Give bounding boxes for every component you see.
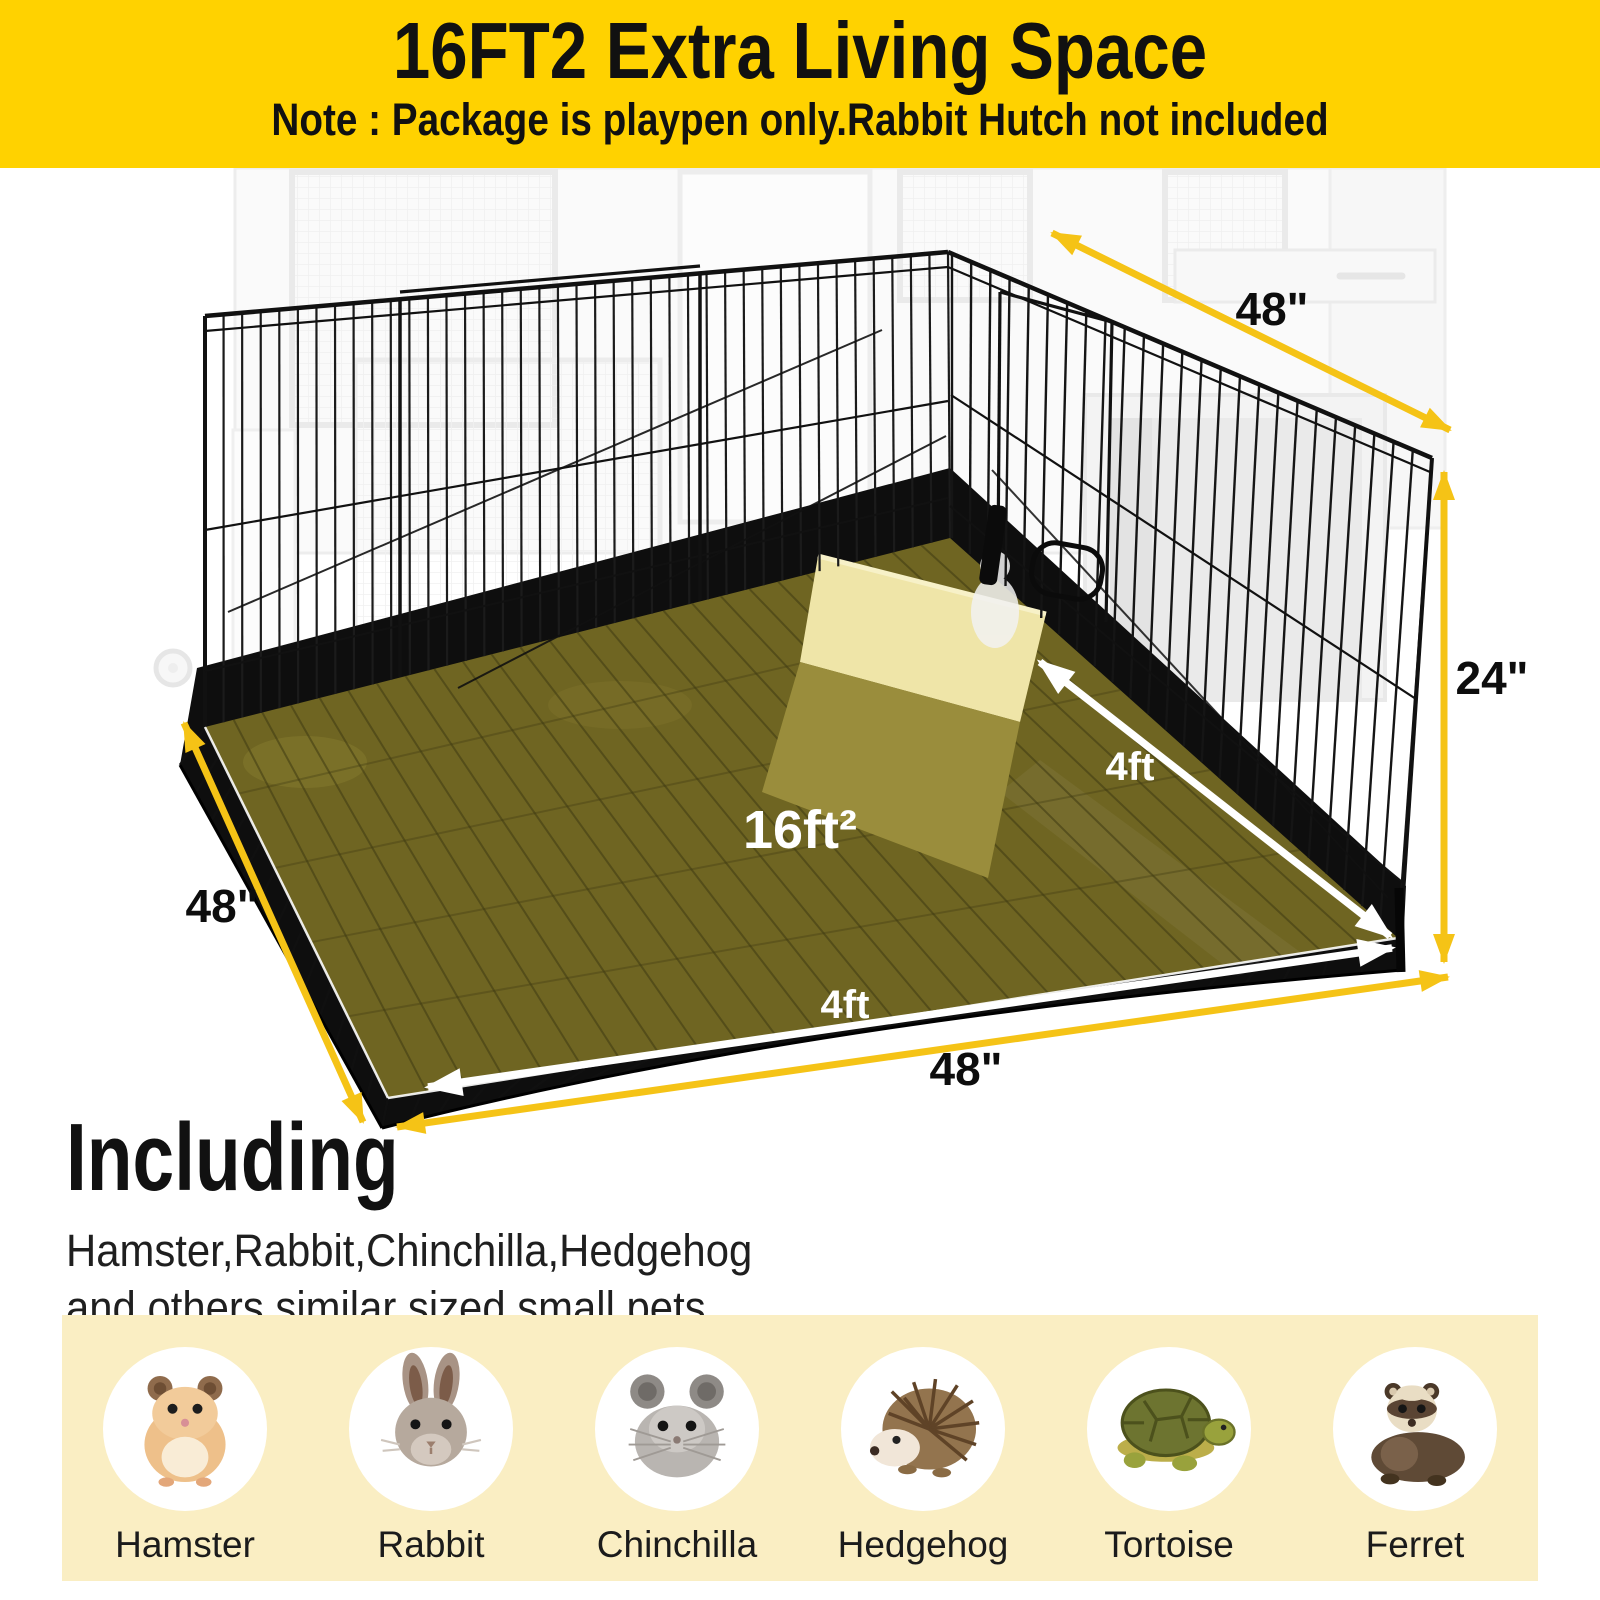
- pet-label: Chinchilla: [597, 1524, 757, 1566]
- pet-label: Ferret: [1366, 1524, 1465, 1566]
- including-heading: Including: [66, 1108, 642, 1208]
- pet-label: Hedgehog: [838, 1524, 1009, 1566]
- pet-card: Ferret: [1292, 1315, 1538, 1581]
- left-depth-label: 48": [186, 880, 259, 932]
- pets-panel: Hamster Rabbit: [62, 1315, 1538, 1581]
- subheadline: Note : Package is playpen only.Rabbit Hu…: [112, 94, 1488, 146]
- floor-width-label: 4ft: [821, 983, 870, 1027]
- bottom-width-label: 48": [930, 1043, 1003, 1095]
- height-label: 24": [1456, 652, 1529, 704]
- header-banner: 16FT2 Extra Living Space Note : Package …: [0, 0, 1600, 168]
- floor-depth-label: 4ft: [1106, 745, 1155, 789]
- pet-label: Tortoise: [1104, 1524, 1234, 1566]
- floor-area-label: 16ft²: [743, 800, 857, 860]
- hamster-image: [103, 1347, 267, 1511]
- top-width-label: 48": [1236, 283, 1309, 335]
- pet-card: Hamster: [62, 1315, 308, 1581]
- including-section: Including Hamster,Rabbit,Chinchilla,Hedg…: [66, 1108, 804, 1336]
- pet-card: Hedgehog: [800, 1315, 1046, 1581]
- ferret-image: [1333, 1347, 1497, 1511]
- pet-card: Rabbit: [308, 1315, 554, 1581]
- tortoise-image: [1087, 1347, 1251, 1511]
- hedgehog-image: [841, 1347, 1005, 1511]
- pet-label: Rabbit: [378, 1524, 485, 1566]
- product-infographic: 4ft 4ft 16ft² 48" 24" 48" 48" 16FT2 Extr…: [0, 0, 1600, 1600]
- chinchilla-image: [595, 1347, 759, 1511]
- headline: 16FT2 Extra Living Space: [128, 0, 1472, 94]
- pet-label: Hamster: [115, 1524, 255, 1566]
- pet-card: Chinchilla: [554, 1315, 800, 1581]
- pet-card: Tortoise: [1046, 1315, 1292, 1581]
- rabbit-image: [349, 1347, 513, 1511]
